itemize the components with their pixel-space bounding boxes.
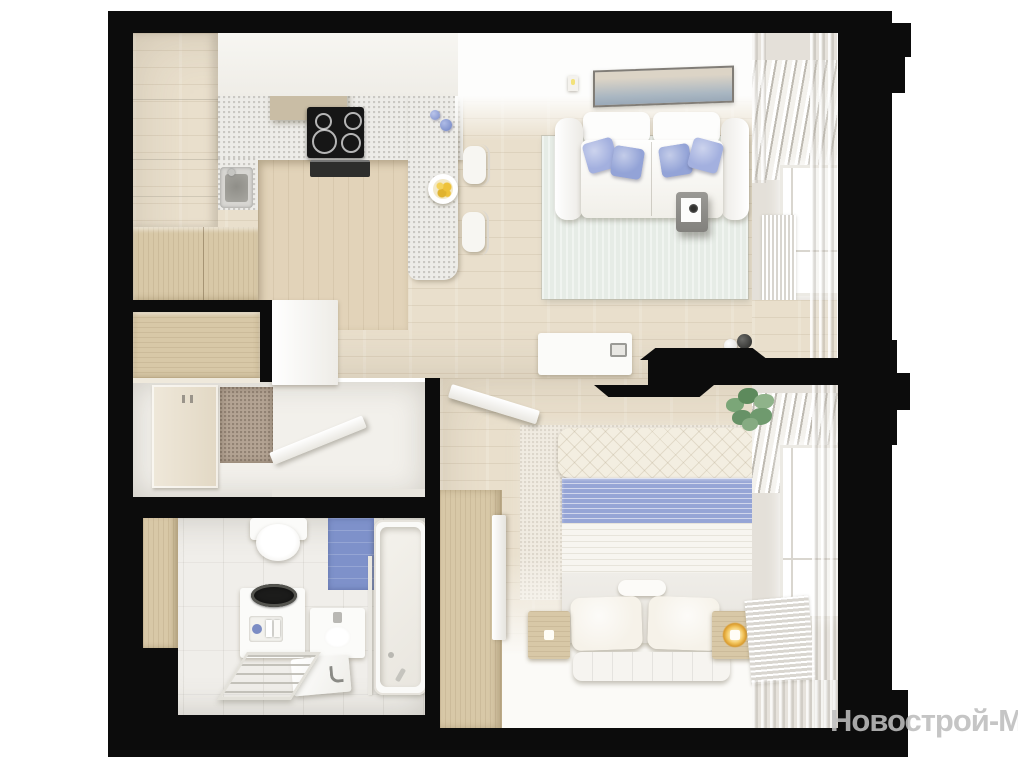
burner-icon	[312, 129, 337, 154]
faucet-icon	[228, 169, 235, 176]
hallway-wardrobe-edge	[133, 378, 260, 383]
kitchen-lower-cabinets	[133, 227, 260, 302]
bed-pillow-right	[647, 596, 720, 651]
hallway-return-wall	[260, 300, 272, 382]
lamp-base	[730, 630, 740, 640]
sink-basin	[225, 174, 248, 202]
doormat	[220, 387, 273, 463]
wall-tv-living	[640, 348, 768, 360]
wall-art	[593, 66, 734, 108]
washer-drum-icon	[251, 584, 297, 607]
curtains-bedroom	[812, 385, 838, 728]
closet-door	[152, 385, 218, 488]
hallway-top-wall	[130, 300, 272, 312]
burner-icon	[341, 133, 361, 153]
decor-vase-black	[737, 334, 752, 349]
watermark: Новострой-М	[830, 703, 1018, 739]
potted-plant	[724, 386, 778, 434]
bedroom-top-wall	[648, 358, 838, 385]
cooktop	[307, 107, 364, 158]
hallway-bottom-wall	[130, 497, 440, 518]
sofa-back-cushion	[653, 112, 720, 143]
bathroom-cabinet	[143, 515, 178, 648]
console-decor	[610, 343, 627, 357]
bedroom-left-wall	[425, 378, 440, 757]
bath-left-wall	[130, 518, 143, 650]
lamp-base	[544, 630, 554, 640]
tv-console	[538, 333, 632, 375]
bed-head-pillow	[558, 428, 762, 478]
sconce-icon	[568, 76, 578, 91]
outer-wall-right	[838, 11, 892, 757]
kitchen-wall-band	[218, 33, 458, 96]
bottle-icon	[274, 620, 280, 637]
bed-pillow-left	[570, 596, 643, 651]
sofa-arm-left	[555, 118, 583, 220]
door-threshold	[272, 489, 428, 497]
curtains-living-left	[752, 33, 766, 183]
hallway-wardrobe	[133, 312, 260, 382]
kitchen-tall-cabinets	[133, 33, 218, 227]
bathtub	[374, 520, 427, 695]
curtains-bedroom-bottom	[752, 680, 838, 728]
detergent-cap-icon	[252, 624, 262, 634]
door-handle-icon	[190, 395, 193, 403]
sofa-back-cushion	[583, 112, 650, 143]
sofa-arm-right	[721, 118, 749, 220]
bar-stool	[462, 208, 487, 260]
radiator-living	[762, 215, 796, 300]
wall-protrusion-top-right-1	[890, 23, 911, 57]
pendant-lamps-icon	[428, 108, 454, 134]
bed-blanket-blue	[562, 478, 758, 523]
sofa	[555, 112, 748, 220]
lemons	[433, 179, 453, 199]
kitchen-lower-cabinet-seam	[203, 227, 204, 302]
outer-wall-top	[108, 11, 892, 33]
bottle-icon	[266, 620, 272, 637]
radiator-bedroom	[744, 595, 815, 684]
burner-icon	[315, 113, 332, 130]
door-handle-icon	[182, 395, 185, 403]
coffee-cup-icon	[689, 204, 698, 213]
bar-stool	[463, 144, 488, 188]
fruit-plate	[428, 174, 458, 204]
side-table	[676, 192, 708, 232]
vanity-faucet-icon	[333, 612, 342, 623]
bathroom-vanity	[310, 608, 365, 658]
bed-bolster	[618, 580, 666, 596]
detergent-drawer	[249, 616, 283, 642]
outer-wall-bottom-bedroom	[430, 728, 892, 757]
toilet-bowl	[256, 524, 300, 561]
corner-block-bottom-left	[108, 648, 178, 757]
burner-icon	[344, 112, 362, 130]
vanity-sink	[324, 626, 351, 648]
sofa-seat-seam	[651, 142, 652, 216]
living-window-bay	[752, 33, 838, 365]
oven	[310, 160, 370, 177]
bed-bench	[573, 652, 730, 681]
tub-screen	[368, 556, 372, 695]
tub-basin	[380, 527, 421, 687]
wall-tv-bedroom	[594, 385, 714, 397]
shoe-cabinet	[272, 300, 338, 385]
bed-duvet	[562, 523, 758, 573]
wall-protrusion-top-right-2	[890, 57, 905, 93]
sofa-pillow	[610, 145, 645, 180]
curtains-living	[810, 33, 838, 365]
kitchen-sink	[220, 167, 253, 208]
wall-protrusion-mid-right-block	[897, 373, 910, 410]
floor-plan-render: Новострой-М	[0, 0, 1018, 768]
tub-faucet-icon	[388, 652, 394, 658]
hook-icon	[329, 665, 343, 683]
bedroom-door	[492, 515, 506, 640]
bedroom-window-bay	[752, 385, 838, 728]
nightstand-left	[528, 611, 570, 659]
washing-machine	[240, 588, 305, 658]
